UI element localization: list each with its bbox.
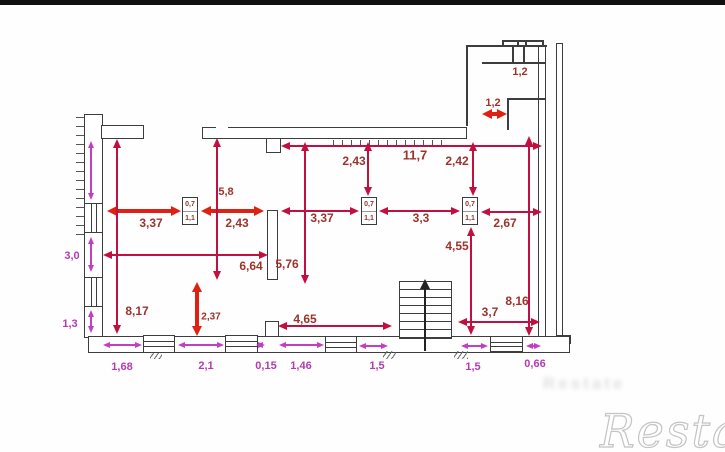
dimension-label: 2,37 <box>201 312 220 323</box>
dimension-arrowhead <box>526 343 533 349</box>
dimension-arrowhead <box>217 342 224 348</box>
dimension-arrowhead <box>192 326 202 336</box>
dimension-arrowhead <box>88 141 94 148</box>
dimension-arrowhead <box>254 206 264 216</box>
dimension-label: 3,37 <box>139 216 162 230</box>
dimension-arrowhead <box>278 322 287 330</box>
dimension-arrowhead <box>383 322 392 330</box>
dimension-arrowhead <box>88 265 94 272</box>
dimension-label: 1,5 <box>369 360 384 372</box>
dimension-arrowhead <box>461 343 468 349</box>
dimension-arrow-shaft <box>90 146 92 195</box>
dimension-arrowhead <box>213 138 221 147</box>
dimension-arrowhead <box>113 325 121 334</box>
dimension-label: 2,1 <box>198 360 213 372</box>
dimension-arrowhead <box>279 342 286 348</box>
dimension-arrow-shaft <box>90 242 92 267</box>
dimension-arrow-shaft <box>195 290 199 328</box>
dimension-arrow-shaft <box>470 234 473 328</box>
dimension-arrowhead <box>258 342 265 348</box>
dimension-label: 3,0 <box>64 250 79 262</box>
dimension-label: 0,66 <box>524 358 545 370</box>
dimension-label: 8,16 <box>505 294 528 308</box>
dimension-label: 6,64 <box>239 259 262 273</box>
floor-plan-canvas: 3,372,432,371,21,28,175,85,766,6411,72,4… <box>0 0 725 452</box>
dimension-arrowhead <box>213 271 221 280</box>
dimension-arrowhead <box>113 139 121 148</box>
dimension-label: 4,65 <box>293 312 316 326</box>
dimension-arrowhead <box>135 342 142 348</box>
dimension-label: 8,17 <box>125 304 148 318</box>
dimension-arrow-shaft <box>304 149 307 277</box>
dimension-label: 5,76 <box>275 257 298 271</box>
dimension-label: 11,7 <box>403 148 428 163</box>
dimension-arrow-shaft <box>115 209 173 213</box>
dimension-arrowhead <box>379 207 388 215</box>
dimension-label: 3,37 <box>310 211 333 225</box>
dimension-arrowhead <box>88 237 94 244</box>
dimension-arrowhead <box>281 207 290 215</box>
dimension-arrowhead <box>534 343 541 349</box>
dimension-arrowhead <box>481 208 490 216</box>
dimension-arrowhead <box>201 206 211 216</box>
dimension-arrow-shaft <box>472 149 475 189</box>
dimension-arrowhead <box>192 282 202 292</box>
dimension-label: 1,2 <box>512 66 527 78</box>
dimension-arrowhead <box>364 142 372 151</box>
dimension-arrowhead <box>103 251 112 259</box>
dimension-arrowhead <box>525 327 533 336</box>
dimension-arrowhead <box>469 142 477 151</box>
dimension-arrowhead <box>259 251 268 259</box>
watermark-restate: Restate <box>600 404 725 452</box>
dimension-arrowhead <box>458 318 467 326</box>
dimension-arrowhead <box>381 343 388 349</box>
dimension-label: 1,5 <box>465 361 480 373</box>
dimension-arrowhead <box>171 206 181 216</box>
dimension-label: 1,2 <box>485 97 500 109</box>
dimension-arrow-shaft <box>116 146 119 327</box>
dimension-arrowhead <box>481 343 488 349</box>
dimension-arrowhead <box>531 318 540 326</box>
dimension-label: 0,15 <box>255 360 276 372</box>
dimension-arrowhead <box>533 142 542 150</box>
dimension-label: 2,43 <box>225 216 248 230</box>
dimension-label: 2,67 <box>493 216 516 230</box>
dimension-arrowhead <box>469 187 477 196</box>
dimension-arrowhead <box>482 109 492 119</box>
watermark-ghost: Restate <box>543 374 625 394</box>
dimension-arrow-shaft <box>108 344 137 346</box>
dimension-arrow-shaft <box>110 254 261 257</box>
dimension-arrowhead <box>364 187 372 196</box>
dimension-label: 3,7 <box>482 305 499 319</box>
dimension-arrowhead <box>88 310 94 317</box>
dimension-label: 1,68 <box>111 361 132 373</box>
dimension-label: 3,3 <box>413 211 430 225</box>
dimension-label: 4,55 <box>445 239 468 253</box>
dimension-arrowhead <box>467 227 475 236</box>
dimension-arrowhead <box>103 342 110 348</box>
dimension-arrow-shaft <box>465 321 533 324</box>
dimension-label: 2,42 <box>445 154 468 168</box>
dimension-arrowhead <box>88 326 94 333</box>
dimension-label: 5,8 <box>218 186 233 198</box>
dimension-arrowhead <box>467 326 475 335</box>
dimension-label: 1,3 <box>62 318 77 330</box>
dimension-arrowhead <box>178 342 185 348</box>
dimension-arrow-shaft <box>284 344 319 346</box>
dimension-arrowhead <box>281 142 290 150</box>
dimension-arrowhead <box>88 193 94 200</box>
dimension-arrowhead <box>533 208 542 216</box>
dimension-arrowhead <box>525 136 533 145</box>
dimension-arrowhead <box>497 109 507 119</box>
dimension-label: 1,46 <box>290 360 311 372</box>
dimension-arrow-shaft <box>183 344 219 346</box>
dimension-arrow-shaft <box>367 149 370 189</box>
dimension-arrowhead <box>350 207 359 215</box>
dimension-label: 2,43 <box>342 154 365 168</box>
dimension-arrowhead <box>359 343 366 349</box>
dimension-arrowhead <box>451 207 460 215</box>
dimension-arrowhead <box>317 342 324 348</box>
dimension-arrowhead <box>301 275 309 284</box>
